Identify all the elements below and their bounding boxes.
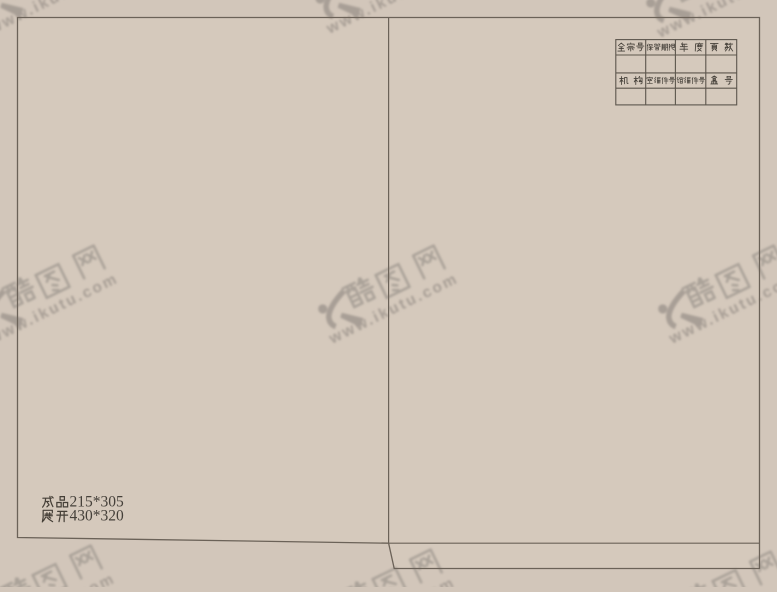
svg-text:430*320: 430*320: [70, 508, 125, 525]
